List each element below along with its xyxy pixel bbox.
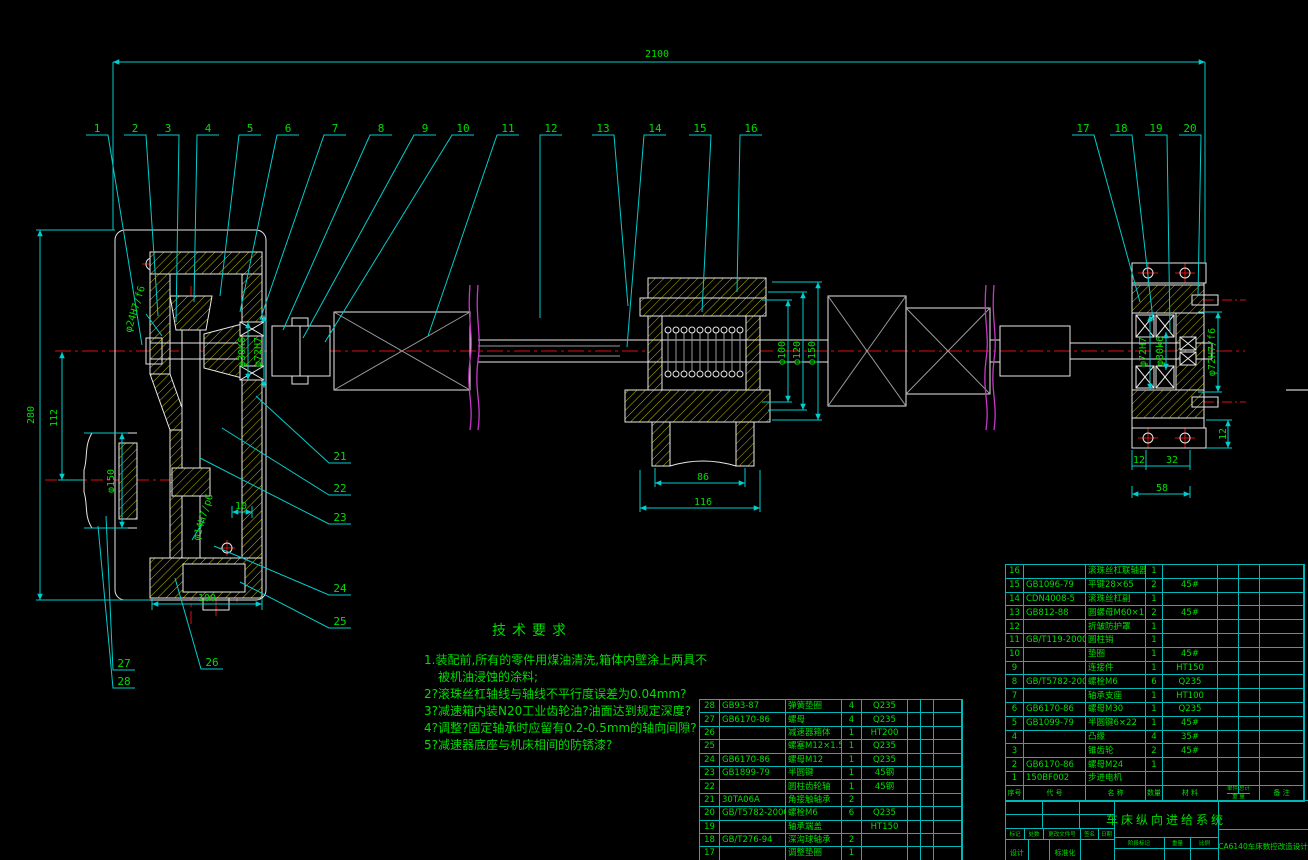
bom-cell-qty: 6 [1146, 675, 1163, 689]
bom-cell-total-weight [921, 740, 934, 753]
bom-cell-code [1024, 620, 1086, 634]
bom-cell-qty: 1 [1146, 717, 1163, 731]
bom-cell-material [1163, 758, 1218, 772]
bom-cell-name: 螺栓M6 [786, 807, 842, 820]
bom-cell-total-weight [921, 834, 934, 847]
bom-cell-qty: 2 [842, 834, 862, 847]
bom-cell-no: 24 [700, 754, 720, 767]
bom-cell-name: 垫圈 [1086, 648, 1146, 662]
callout-13: 13 [596, 122, 609, 135]
bom-cell-unit-weight [908, 754, 921, 767]
callout-14: 14 [648, 122, 662, 135]
bom-cell-code: 30TA06A [720, 794, 786, 807]
bom-cell-code [1024, 648, 1086, 662]
dim-phi30k6-right: φ30k6 [1155, 336, 1166, 366]
bom-cell-unit-weight [1218, 744, 1239, 758]
bom-cell-total-weight [1239, 648, 1260, 662]
bom-cell-unit-weight [908, 700, 921, 713]
callout-9: 9 [422, 122, 429, 135]
coupling [272, 326, 330, 376]
bom-cell-total-weight [1239, 662, 1260, 676]
bom-cell-material: Q235 [862, 700, 908, 713]
bom-cell-no: 11 [1006, 634, 1024, 648]
bom-cell-no: 22 [700, 780, 720, 793]
callout-8: 8 [378, 122, 385, 135]
bom-cell-material: Q235 [862, 740, 908, 753]
bom-cell-unit-weight [1218, 648, 1239, 662]
callout-12: 12 [544, 122, 557, 135]
bom-cell-no: 7 [1006, 689, 1024, 703]
bom-cell-material: 45# [1163, 606, 1218, 620]
bom-cell-name: 螺栓M6 [1086, 675, 1146, 689]
bom-cell-qty: 1 [842, 847, 862, 860]
bom-cell-note [1260, 662, 1304, 676]
bom-cell-total-weight [1239, 717, 1260, 731]
dim-phi120: φ120 [792, 341, 803, 365]
tech-req-line: 被机油浸蚀的涂料; [424, 669, 694, 686]
bom-cell-no: 2 [1006, 758, 1024, 772]
bom-cell-code: GB1899-79 [720, 767, 786, 780]
bom-cell-no: 27 [700, 713, 720, 726]
bom-cell-no: 20 [700, 807, 720, 820]
bom-cell-material: Q235 [862, 807, 908, 820]
bom-cell-total-weight [921, 713, 934, 726]
bom-cell-total-weight [921, 821, 934, 834]
bom-cell-total-weight [921, 780, 934, 793]
callout-10: 10 [456, 122, 469, 135]
bom-cell-note [934, 821, 962, 834]
bom-cell-total-weight [1239, 579, 1260, 593]
bom-header-unit-weight: 单件 [1227, 786, 1239, 793]
bom-cell-code [720, 727, 786, 740]
bom-cell-note [1260, 579, 1304, 593]
bom-cell-material [1163, 620, 1218, 634]
callout-5: 5 [247, 122, 254, 135]
bom-cell-code [1024, 565, 1086, 579]
bom-header-weight: 单件 总计 重 量 [1218, 786, 1260, 801]
bom-cell-note [1260, 565, 1304, 579]
bom-header-material: 材 料 [1163, 786, 1218, 801]
dim-12-vertical: 12 [1218, 428, 1229, 440]
callout-23: 23 [333, 511, 346, 524]
bom-cell-unit-weight [1218, 579, 1239, 593]
callout-6: 6 [285, 122, 292, 135]
bom-cell-code [720, 780, 786, 793]
bom-cell-unit-weight [1218, 675, 1239, 689]
housing-top-wall [150, 252, 262, 274]
bom-cell-total-weight [1239, 731, 1260, 745]
bom-cell-code: GB/T5782-2000 [720, 807, 786, 820]
callout-16: 16 [744, 122, 757, 135]
bom-cell-no: 10 [1006, 648, 1024, 662]
callout-27: 27 [117, 657, 130, 670]
bom-cell-name: 半圆键 [786, 767, 842, 780]
callout-22: 22 [333, 482, 346, 495]
bom-cell-unit-weight [908, 767, 921, 780]
bom-cell-note [934, 780, 962, 793]
title-block: 标记 处数 更改文件号 签名 日期 设计 标准化 车床纵向进给系统 阶段标记 重… [1005, 800, 1308, 860]
bom-cell-total-weight [1239, 758, 1260, 772]
bom-cell-material: HT200 [862, 727, 908, 740]
bom-cell-name: 凸缘 [1086, 731, 1146, 745]
bom-cell-material [1163, 565, 1218, 579]
bom-cell-name: 调整垫圈 [786, 847, 842, 860]
bom-cell-material: Q235 [1163, 675, 1218, 689]
bom-header-qty: 数量 [1146, 786, 1163, 801]
bom-cell-qty: 6 [842, 807, 862, 820]
nut-top-cover [648, 278, 766, 298]
bom-cell-no: 12 [1006, 620, 1024, 634]
bom-cell-qty [842, 821, 862, 834]
bom-cell-unit-weight [1218, 703, 1239, 717]
bom-cell-note [1260, 634, 1304, 648]
bom-cell-note [1260, 648, 1304, 662]
bom-cell-unit-weight [1218, 731, 1239, 745]
bom-cell-qty: 1 [1146, 662, 1163, 676]
title-block-name-zone: 车床纵向进给系统 阶段标记 重量 比例 [1114, 801, 1219, 860]
label-change-file: 更改文件号 [1044, 829, 1081, 839]
bom-cell-unit-weight [1218, 758, 1239, 772]
label-signature: 签名 [1081, 829, 1099, 839]
bom-cell-code: GB/T119-2000 [1024, 634, 1086, 648]
callout-15: 15 [693, 122, 706, 135]
bom-header-code: 代 号 [1024, 786, 1086, 801]
bom-cell-material: Q235 [862, 754, 908, 767]
bom-cell-material [862, 794, 908, 807]
bom-cell-code: GB812-88 [1024, 606, 1086, 620]
dim-phi100: φ100 [777, 341, 788, 365]
callout-26: 26 [205, 656, 218, 669]
tech-req-line: 5?减速器底座与机床相间的防锈漆? [424, 737, 694, 754]
dim-10: 10 [235, 501, 247, 512]
bom-cell-total-weight [921, 700, 934, 713]
bom-cell-qty: 2 [1146, 606, 1163, 620]
label-count: 处数 [1025, 829, 1044, 839]
bom-cell-code: GB1096-79 [1024, 579, 1086, 593]
bom-cell-total-weight [1239, 703, 1260, 717]
bom-cell-material: 45# [1163, 579, 1218, 593]
bom-cell-material [862, 847, 908, 860]
bom-cell-code [1024, 689, 1086, 703]
callout-11: 11 [501, 122, 514, 135]
bom-cell-unit-weight [1218, 662, 1239, 676]
bom-cell-code: GB/T276-94 [720, 834, 786, 847]
dim-phi72H7-right: φ72H7 [1138, 337, 1149, 367]
callout-28: 28 [117, 675, 130, 688]
bom-cell-qty: 1 [1146, 648, 1163, 662]
callout-18: 18 [1114, 122, 1127, 135]
bom-cell-unit-weight [1218, 717, 1239, 731]
bom-cell-total-weight [1239, 593, 1260, 607]
bom-cell-qty: 1 [842, 767, 862, 780]
bom-cell-code: GB6170-86 [1024, 758, 1086, 772]
bom-cell-note [934, 767, 962, 780]
bom-cell-qty: 1 [1146, 758, 1163, 772]
cad-drawing-sheet: 1 2 3 4 5 6 7 8 9 10 11 12 13 14 15 16 1… [0, 0, 1308, 860]
bom-cell-no: 18 [700, 834, 720, 847]
bom-cell-no: 16 [1006, 565, 1024, 579]
bom-cell-name: 步进电机 [1086, 772, 1146, 786]
bom-cell-material: 45# [1163, 744, 1218, 758]
bom-cell-material: HT100 [1163, 689, 1218, 703]
bom-cell-material: 45# [1163, 648, 1218, 662]
bom-cell-material: 45钢 [862, 767, 908, 780]
bom-cell-qty: 4 [842, 700, 862, 713]
bom-cell-code: GB1099-79 [1024, 717, 1086, 731]
bom-cell-total-weight [1239, 772, 1260, 786]
callout-25: 25 [333, 615, 346, 628]
bom-cell-material: 45钢 [862, 780, 908, 793]
bom-cell-code: 150BF002 [1024, 772, 1086, 786]
bom-cell-no: 13 [1006, 606, 1024, 620]
bom-cell-total-weight [1239, 620, 1260, 634]
bom-cell-note [1260, 772, 1304, 786]
bom-cell-unit-weight [908, 727, 921, 740]
bom-cell-name: 螺母M24 [1086, 758, 1146, 772]
label-scale: 比例 [1191, 838, 1218, 848]
bom-cell-name: 角接触轴承 [786, 794, 842, 807]
label-mark: 标记 [1006, 829, 1025, 839]
callout-7: 7 [332, 122, 339, 135]
bom-cell-unit-weight [1218, 606, 1239, 620]
bom-cell-qty: 1 [842, 754, 862, 767]
bom-cell-total-weight [921, 754, 934, 767]
bom-cell-qty: 1 [1146, 620, 1163, 634]
bom-cell-unit-weight [908, 834, 921, 847]
dim-32: 32 [1166, 455, 1178, 466]
bom-cell-unit-weight [1218, 565, 1239, 579]
dim-phi150-motor: φ150 [106, 469, 117, 493]
bom-cell-note [934, 794, 962, 807]
bom-cell-name: 折皱防护罩 [1086, 620, 1146, 634]
ball-nut-body [648, 316, 760, 390]
bom-header-name: 名 称 [1086, 786, 1146, 801]
bom-cell-note [934, 713, 962, 726]
bom-cell-name: 平键28×65 [1086, 579, 1146, 593]
bom-cell-note [1260, 717, 1304, 731]
drawing-title: 车床纵向进给系统 [1114, 801, 1218, 838]
bom-cell-qty: 1 [1146, 703, 1163, 717]
bom-cell-unit-weight [908, 847, 921, 860]
dim-112: 112 [49, 409, 60, 427]
label-design: 设计 [1006, 840, 1029, 860]
bom-cell-unit-weight [908, 821, 921, 834]
bom-cell-material: 35# [1163, 731, 1218, 745]
dim-height-280: 280 [26, 406, 37, 424]
tech-req-line: 1.装配前,所有的零件用煤油清洗,箱体内壁涂上两具不 [424, 652, 694, 669]
tech-req-line: 4?调整?固定轴承时应留有0.2-0.5mm的轴向间隙? [424, 720, 694, 737]
bom-cell-unit-weight [1218, 689, 1239, 703]
bom-cell-note [934, 834, 962, 847]
bom-cell-no: 23 [700, 767, 720, 780]
tech-req-line: 3?减速箱内装N20工业齿轮油?油面达到规定深度? [424, 703, 694, 720]
dim-phi30K6-left: φ30K6 [237, 337, 248, 367]
bom-cell-name: 圆柱销 [1086, 634, 1146, 648]
bom-cell-material: HT150 [862, 821, 908, 834]
part-geometry [84, 230, 1308, 610]
bom-cell-material [1163, 634, 1218, 648]
callout-4: 4 [205, 122, 212, 135]
bom-cell-code [1024, 731, 1086, 745]
bom-cell-no: 26 [700, 727, 720, 740]
bom-cell-name: 半圆键6×22 [1086, 717, 1146, 731]
bom-cell-total-weight [921, 847, 934, 860]
bom-cell-note [1260, 620, 1304, 634]
bom-cell-name: 深沟球轴承 [786, 834, 842, 847]
bom-cell-material: Q235 [862, 713, 908, 726]
bom-cell-no: 25 [700, 740, 720, 753]
bom-table-items-1-16: 16 滚珠丝杠联轴器 1 15 GB1096-79 平键28×65 2 45# … [1005, 564, 1305, 787]
bom-cell-material: HT150 [1163, 662, 1218, 676]
bom-cell-total-weight [1239, 634, 1260, 648]
bom-cell-note [934, 727, 962, 740]
bom-cell-note [934, 754, 962, 767]
bom-cell-total-weight [921, 767, 934, 780]
bom-cell-unit-weight [1218, 620, 1239, 634]
callout-3: 3 [165, 122, 172, 135]
bom-cell-name: 轴承支座 [1086, 689, 1146, 703]
dim-overall-length: 2100 [645, 49, 669, 60]
bom-cell-no: 1 [1006, 772, 1024, 786]
bom-cell-no: 19 [700, 821, 720, 834]
callout-20: 20 [1183, 122, 1196, 135]
bom-header-total-weight: 总计 [1239, 786, 1250, 793]
bom-cell-code [720, 821, 786, 834]
bom-cell-qty: 1 [1146, 593, 1163, 607]
bom-cell-total-weight [1239, 689, 1260, 703]
bom-cell-unit-weight [908, 780, 921, 793]
dim-58: 58 [1156, 483, 1168, 494]
callout-1: 1 [94, 122, 101, 135]
bom-cell-total-weight [921, 727, 934, 740]
tech-req-title: 技术要求 [492, 620, 572, 640]
bom-cell-name: 减速器箱体 [786, 727, 842, 740]
bom-cell-name: 螺母M12 [786, 754, 842, 767]
bom-cell-name: 螺母M30 [1086, 703, 1146, 717]
dim-12-bottom: 12 [1133, 455, 1145, 466]
callout-19: 19 [1149, 122, 1162, 135]
bom-cell-qty: 1 [1146, 689, 1163, 703]
dim-116: 116 [694, 497, 712, 508]
bom-cell-note [1260, 731, 1304, 745]
bom-cell-code [1024, 744, 1086, 758]
bom-cell-total-weight [921, 807, 934, 820]
bom-cell-name: 滚珠丝杠副 [1086, 593, 1146, 607]
dim-phi24H7: φ24H7/f6 [123, 285, 148, 334]
bom-cell-qty: 2 [1146, 579, 1163, 593]
bom-cell-qty: 1 [1146, 565, 1163, 579]
bom-cell-no: 5 [1006, 717, 1024, 731]
bom-cell-no: 3 [1006, 744, 1024, 758]
callout-21: 21 [333, 450, 346, 463]
bom-cell-name: 滚珠丝杠联轴器 [1086, 565, 1146, 579]
bom-cell-material: 45# [1163, 717, 1218, 731]
bom-cell-note [1260, 758, 1304, 772]
bom-cell-qty: 2 [842, 794, 862, 807]
bom-cell-unit-weight [908, 713, 921, 726]
label-standardization: 标准化 [1050, 840, 1081, 860]
bom-cell-code: GB6170-86 [1024, 703, 1086, 717]
bom-cell-no: 21 [700, 794, 720, 807]
bom-cell-qty: 1 [842, 727, 862, 740]
bom-cell-name: 圆柱齿轮轴 [786, 780, 842, 793]
bom-cell-note [934, 807, 962, 820]
bom-cell-name: 螺塞M12×1.5 [786, 740, 842, 753]
bom-cell-note [1260, 606, 1304, 620]
bom-cell-material: Q235 [1163, 703, 1218, 717]
callout-24: 24 [333, 582, 347, 595]
dim-phi72H7f6: φ72H7/f6 [1207, 328, 1218, 376]
bom-cell-note [1260, 593, 1304, 607]
bom-cell-unit-weight [908, 740, 921, 753]
dim-phi150-cover: φ150 [807, 341, 818, 365]
bom-cell-qty: 2 [1146, 744, 1163, 758]
bom-cell-note [1260, 675, 1304, 689]
bom-cell-qty: 4 [842, 713, 862, 726]
dim-phi72H7-left: φ72H7 [253, 337, 264, 367]
bom-cell-qty [1146, 772, 1163, 786]
bom-cell-code: GB/T5782-2000 [1024, 675, 1086, 689]
bom-cell-material [862, 834, 908, 847]
label-stage-mark: 阶段标记 [1114, 838, 1165, 848]
bom-cell-no: 4 [1006, 731, 1024, 745]
bom-cell-total-weight [1239, 565, 1260, 579]
bom-cell-qty: 1 [1146, 634, 1163, 648]
bom-cell-note [1260, 703, 1304, 717]
project-name: CA6140车床数控改造设计 [1218, 830, 1308, 860]
bom-cell-no: 17 [700, 847, 720, 860]
bom-cell-no: 8 [1006, 675, 1024, 689]
title-block-revision-zone: 标记 处数 更改文件号 签名 日期 设计 标准化 [1006, 801, 1115, 860]
bom-cell-unit-weight [908, 794, 921, 807]
bom-header-no: 序号 [1006, 786, 1024, 801]
bom-cell-unit-weight [1218, 772, 1239, 786]
bom-cell-unit-weight [908, 807, 921, 820]
label-weight: 重量 [1165, 838, 1191, 848]
bom-cell-code [720, 847, 786, 860]
bom-cell-unit-weight [1218, 593, 1239, 607]
callout-2: 2 [132, 122, 139, 135]
bom-cell-material [1163, 593, 1218, 607]
bom-cell-code: CDN4008-5 [1024, 593, 1086, 607]
title-block-project-zone: CA6140车床数控改造设计 [1218, 801, 1308, 860]
bom-cell-note [934, 700, 962, 713]
bom-cell-material [1163, 772, 1218, 786]
bom-cell-qty: 1 [842, 740, 862, 753]
label-date: 日期 [1099, 829, 1114, 839]
bom-cell-total-weight [1239, 606, 1260, 620]
bom-cell-no: 6 [1006, 703, 1024, 717]
bom-cell-name: 连接件 [1086, 662, 1146, 676]
bom-cell-no: 15 [1006, 579, 1024, 593]
bom-cell-note [1260, 689, 1304, 703]
bom-cell-code: GB93-87 [720, 700, 786, 713]
bom-cell-unit-weight [1218, 634, 1239, 648]
callout-17: 17 [1076, 122, 1089, 135]
bom-cell-name: 螺母 [786, 713, 842, 726]
bom-cell-name: 锥齿轮 [1086, 744, 1146, 758]
bom-header-note: 备 注 [1260, 786, 1304, 801]
bom-cell-total-weight [1239, 675, 1260, 689]
bom-cell-name: 弹簧垫圈 [786, 700, 842, 713]
bom-cell-note [934, 740, 962, 753]
bom-cell-total-weight [1239, 744, 1260, 758]
dim-100: 100 [198, 593, 216, 604]
bom-cell-code: GB6170-86 [720, 754, 786, 767]
nut-bottom-flange [625, 390, 770, 422]
bom-cell-qty: 1 [842, 780, 862, 793]
bom-cell-name: 轴承端盖 [786, 821, 842, 834]
